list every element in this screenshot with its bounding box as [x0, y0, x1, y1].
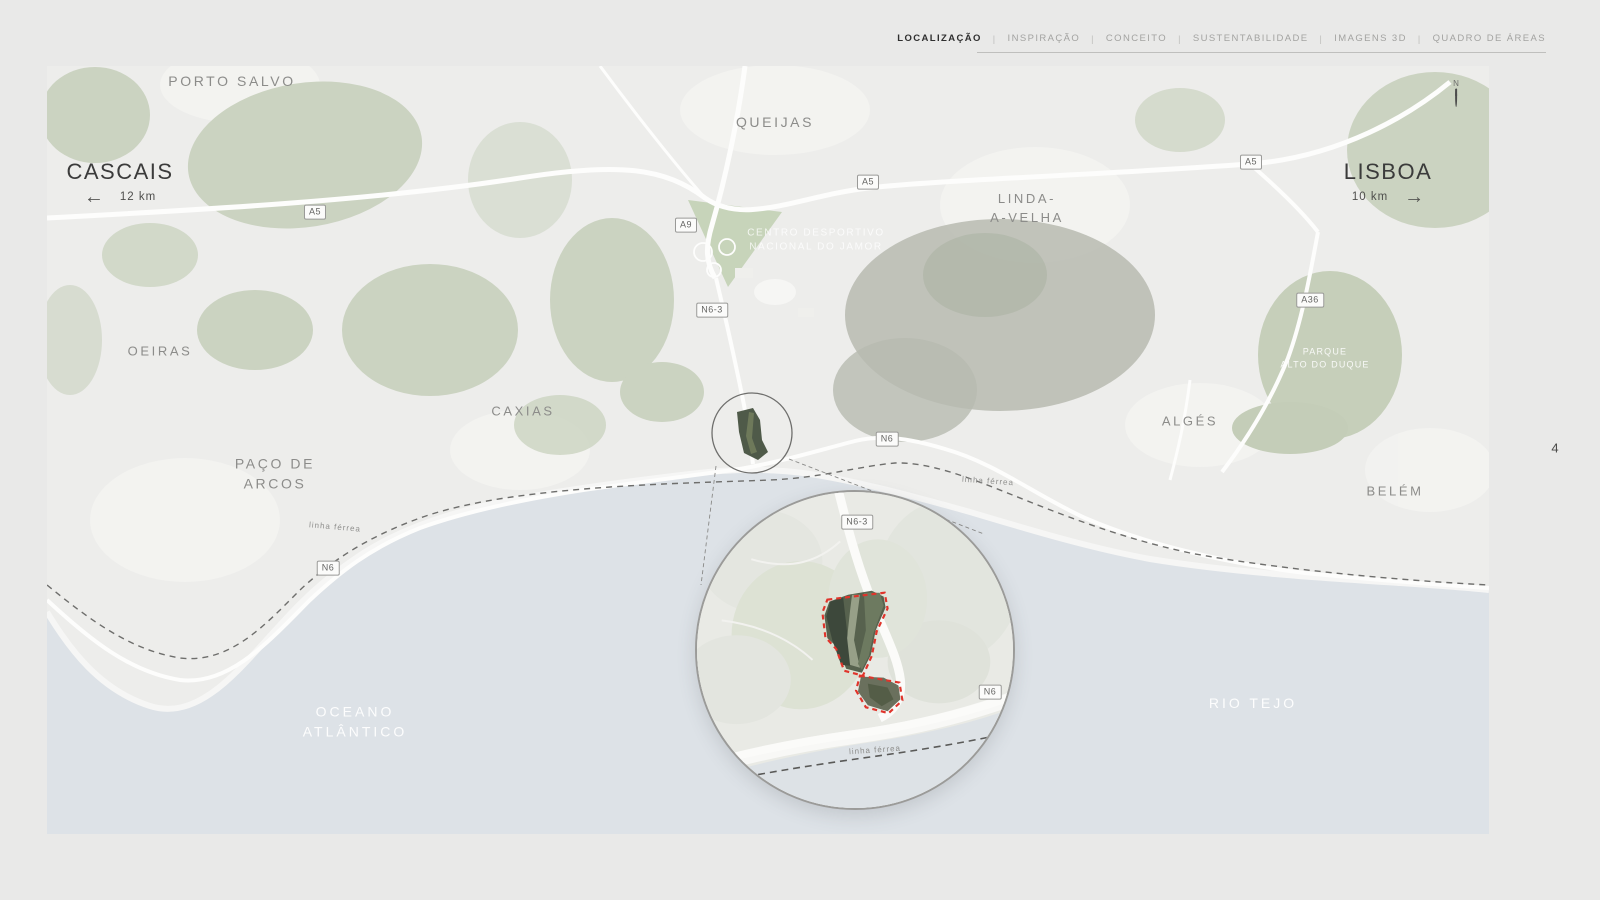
nav-underline — [977, 52, 1546, 53]
label-centro-desportivo-jamor: CENTRO DESPORTIVO NACIONAL DO JAMOR — [747, 227, 885, 254]
label-parque-alto-do-duque: PARQUE ALTO DO DUQUE — [1280, 345, 1369, 370]
label-rio-tejo: RIO TEJO — [1209, 693, 1297, 713]
nav-separator: | — [1178, 34, 1182, 44]
road-badge-n6-3: N6-3 — [696, 303, 728, 318]
slide: LOCALIZAÇÃO | INSPIRAÇÃO | CONCEITO | SU… — [0, 0, 1600, 900]
label-oeiras: OEIRAS — [128, 343, 193, 362]
north-compass-icon — [1455, 88, 1457, 107]
inset-badge-n6-3: N6-3 — [841, 515, 873, 530]
road-badge-a36: A36 — [1296, 293, 1324, 308]
nav-separator: | — [993, 34, 997, 44]
inset-detail-circle: N6-3 N6 linha férrea — [695, 490, 1015, 810]
top-nav: LOCALIZAÇÃO | INSPIRAÇÃO | CONCEITO | SU… — [897, 33, 1546, 44]
arrow-right-icon: → — [1404, 187, 1424, 207]
callout-lisboa: LISBOA 10 km → — [1344, 159, 1432, 207]
nav-item-sustentabilidade[interactable]: SUSTENTABILIDADE — [1193, 33, 1309, 44]
inset-badge-n6: N6 — [979, 685, 1002, 700]
road-badge-a5-mid: A5 — [857, 175, 879, 190]
label-belem: BELÉM — [1366, 483, 1423, 502]
label-queijas: QUEIJAS — [736, 112, 814, 132]
north-letter: N — [1453, 79, 1459, 88]
road-badge-a5-left: A5 — [304, 205, 326, 220]
cascais-distance: 12 km — [120, 191, 156, 203]
nav-separator: | — [1418, 34, 1422, 44]
label-alges: ALGÉS — [1162, 413, 1218, 432]
nav-item-localizacao[interactable]: LOCALIZAÇÃO — [897, 33, 982, 44]
nav-item-imagens-3d[interactable]: IMAGENS 3D — [1334, 33, 1407, 44]
road-badge-n6-mid: N6 — [876, 432, 899, 447]
label-oceano-atlantico: OCEANO ATLÂNTICO — [303, 702, 408, 743]
nav-item-conceito[interactable]: CONCEITO — [1106, 33, 1167, 44]
label-caxias: CAXIAS — [491, 403, 554, 422]
cascais-name: CASCAIS — [66, 159, 173, 185]
road-badge-n6-left: N6 — [317, 561, 340, 576]
page-number: 4 — [1551, 441, 1558, 456]
road-badge-a9: A9 — [675, 218, 697, 233]
nav-separator: | — [1091, 34, 1095, 44]
arrow-left-icon: ← — [84, 187, 104, 207]
north-indicator: N — [1453, 79, 1459, 107]
inset-terrain — [697, 492, 1013, 808]
nav-item-inspiracao[interactable]: INSPIRAÇÃO — [1008, 33, 1081, 44]
nav-item-quadro-de-areas[interactable]: QUADRO DE ÁREAS — [1433, 33, 1546, 44]
label-paco-de-arcos: PAÇO DE ARCOS — [235, 454, 315, 495]
label-porto-salvo: PORTO SALVO — [168, 71, 295, 91]
callout-cascais: CASCAIS ← 12 km — [66, 159, 173, 207]
lisboa-name: LISBOA — [1344, 159, 1432, 185]
road-badge-a5-right: A5 — [1240, 155, 1262, 170]
label-linda-a-velha: LINDA- A-VELHA — [990, 190, 1064, 228]
nav-separator: | — [1320, 34, 1324, 44]
lisboa-distance: 10 km — [1352, 191, 1388, 203]
